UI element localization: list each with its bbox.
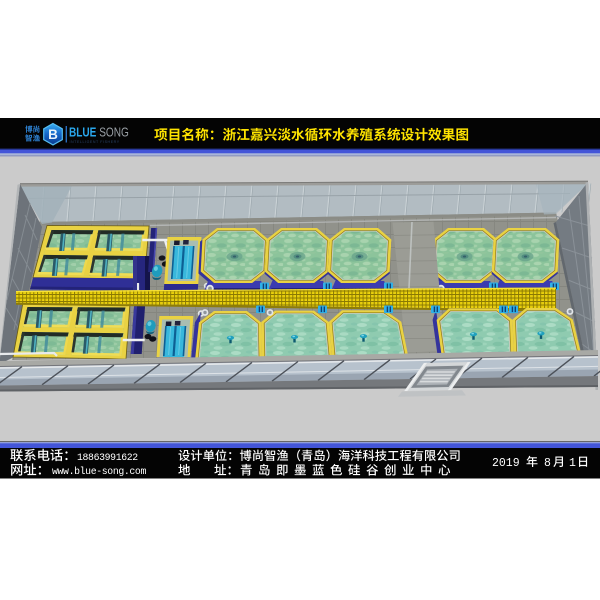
svg-text:INTELLIGENT FISHERY: INTELLIGENT FISHERY	[70, 140, 120, 144]
svg-text:1: 1	[569, 457, 576, 470]
svg-text:BLUE SONG: BLUE SONG	[69, 127, 129, 140]
svg-text:www.blue-song.com: www.blue-song.com	[52, 466, 146, 477]
svg-text:2019: 2019	[492, 457, 520, 470]
svg-text:B: B	[48, 127, 58, 142]
svg-text:8: 8	[544, 457, 551, 470]
svg-text:18863991622: 18863991622	[77, 452, 138, 463]
